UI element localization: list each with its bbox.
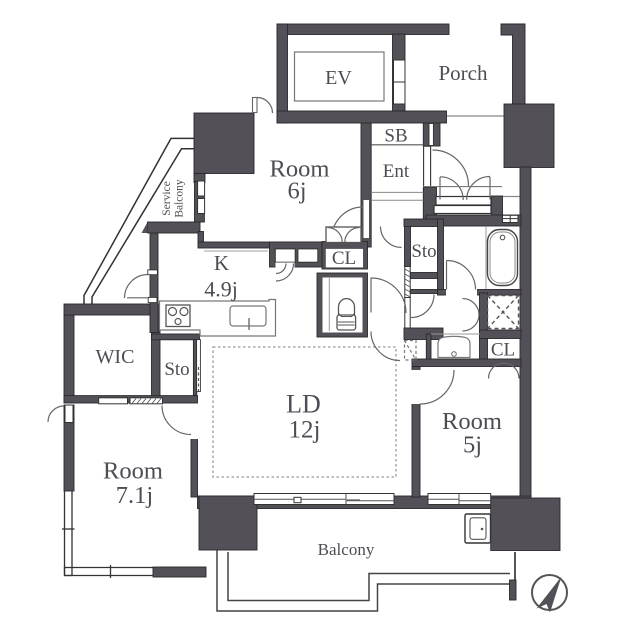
svg-text:Balcony: Balcony	[174, 179, 186, 218]
svg-text:Sto: Sto	[164, 359, 189, 380]
svg-text:Service: Service	[161, 181, 173, 215]
svg-text:6j: 6j	[287, 178, 306, 205]
svg-text:WIC: WIC	[96, 346, 135, 368]
svg-text:K: K	[214, 251, 229, 275]
svg-text:LD: LD	[286, 390, 321, 419]
svg-text:EV: EV	[325, 67, 352, 89]
svg-text:4.9j: 4.9j	[204, 277, 238, 302]
svg-text:SB: SB	[384, 126, 407, 147]
svg-text:Balcony: Balcony	[318, 540, 375, 559]
svg-text:CL: CL	[332, 248, 356, 269]
svg-text:7.1j: 7.1j	[116, 482, 153, 509]
svg-text:Ent: Ent	[383, 161, 410, 182]
svg-text:Sto: Sto	[411, 241, 436, 262]
svg-text:12j: 12j	[289, 417, 321, 444]
svg-text:Room: Room	[103, 458, 163, 485]
svg-text:5j: 5j	[463, 432, 482, 459]
svg-text:CL: CL	[491, 340, 515, 361]
svg-text:Porch: Porch	[439, 61, 488, 85]
